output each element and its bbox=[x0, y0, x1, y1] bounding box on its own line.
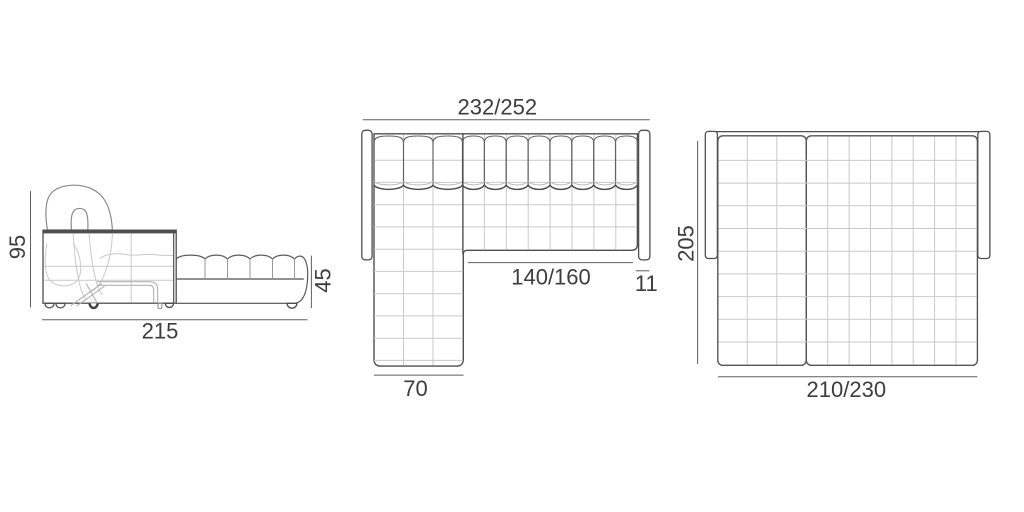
svg-text:205: 205 bbox=[674, 225, 699, 262]
svg-text:70: 70 bbox=[403, 376, 427, 401]
svg-text:45: 45 bbox=[310, 268, 335, 292]
svg-text:95: 95 bbox=[5, 235, 30, 259]
svg-text:215: 215 bbox=[142, 319, 179, 344]
svg-text:210/230: 210/230 bbox=[807, 377, 887, 402]
svg-text:11: 11 bbox=[635, 271, 658, 296]
svg-text:140/160: 140/160 bbox=[511, 265, 591, 290]
svg-text:232/252: 232/252 bbox=[458, 95, 538, 120]
